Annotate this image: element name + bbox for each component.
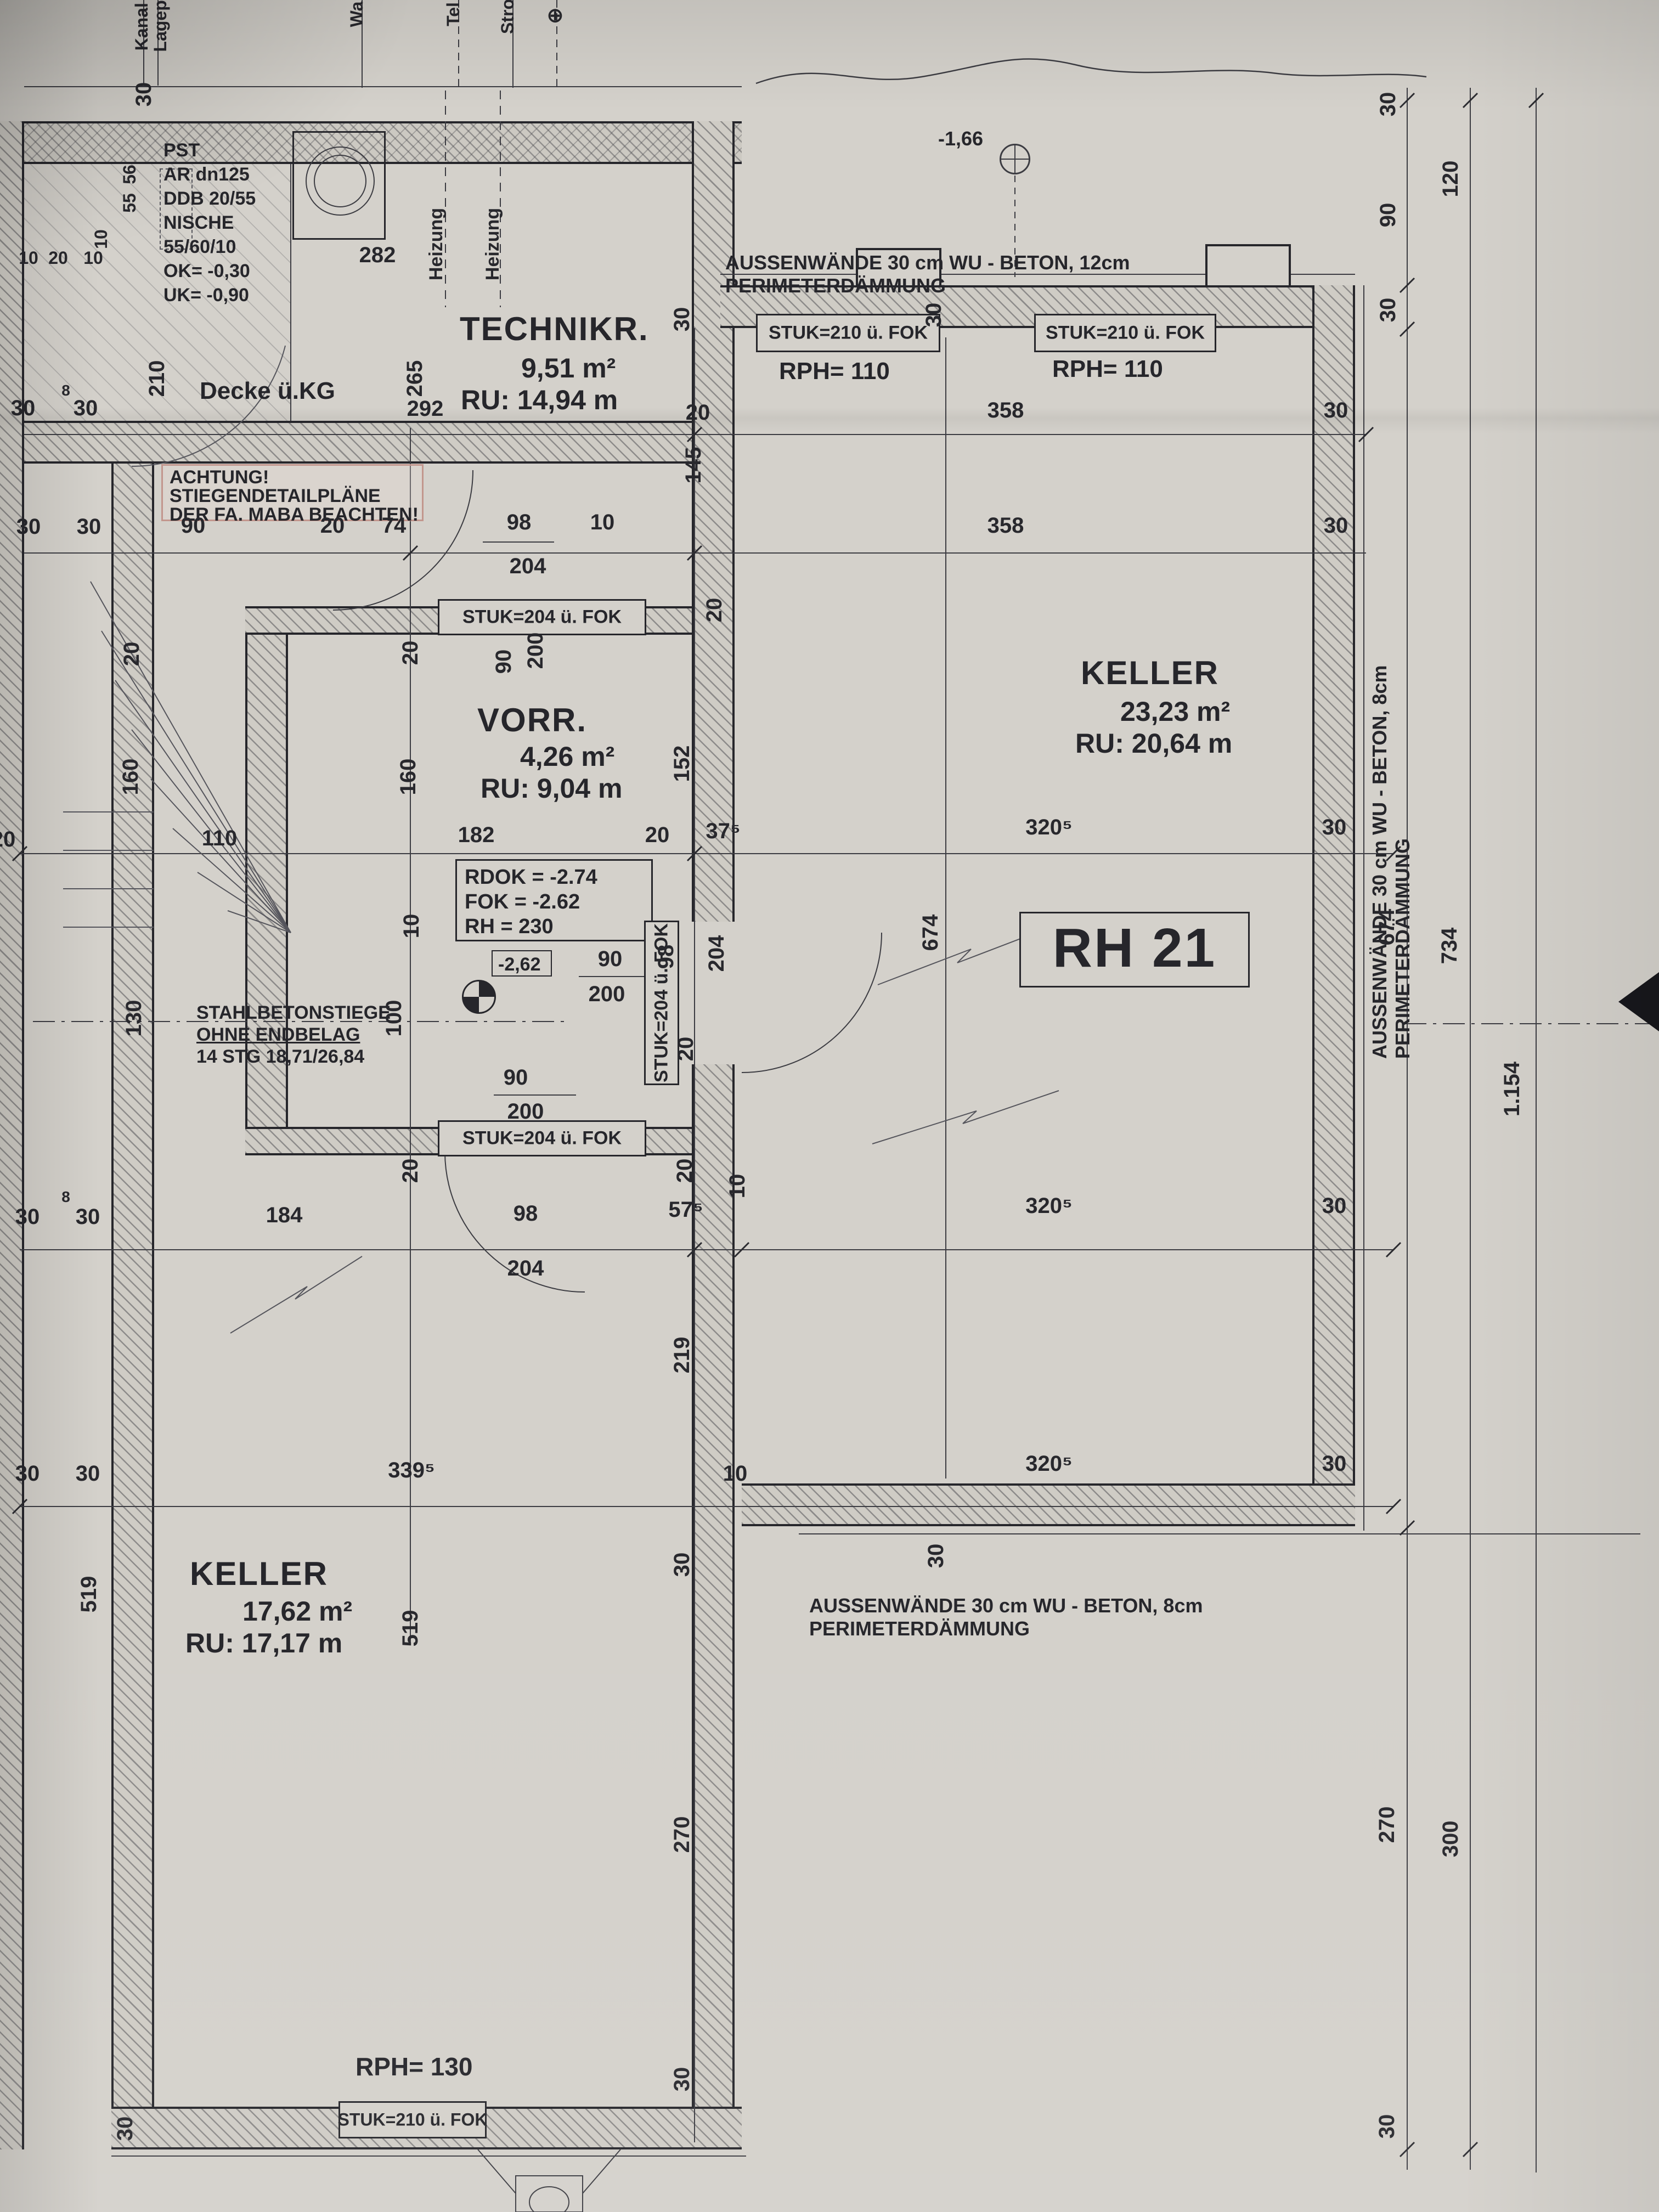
dim-label: 10 xyxy=(19,249,38,267)
dim-label: 30 xyxy=(1376,2114,1398,2139)
dim-label: 30 xyxy=(74,397,98,419)
dim-label: 90 xyxy=(181,515,206,537)
stairs-line: OHNE ENDBELAG xyxy=(196,1024,391,1046)
dim-label: 160 xyxy=(397,759,419,795)
dim-label: 282 xyxy=(359,244,396,266)
dim-label: 30 xyxy=(1324,399,1348,421)
dim-label: 184 xyxy=(266,1204,303,1226)
dim-label: 20 xyxy=(674,1159,696,1183)
dim-label: 292 xyxy=(407,398,444,420)
dim-label: 20 xyxy=(675,1037,697,1062)
dim-label: 20 xyxy=(48,249,68,267)
rph110-label-2: RPH= 110 xyxy=(1052,356,1163,383)
earth-symbol-icon: ⊕ xyxy=(547,5,563,25)
wall-note-top-1: AUSSENWÄNDE 30 cm WU - BETON, 12cm xyxy=(725,251,1130,274)
levels-line: FOK = -2.62 xyxy=(465,890,597,915)
dim-label: 130 xyxy=(123,1000,145,1037)
dim-label: 339⁵ xyxy=(388,1459,435,1481)
dim-label: 10 xyxy=(590,511,615,533)
dim-label: 20 xyxy=(320,515,345,537)
dim-label: 30 xyxy=(1322,816,1347,838)
stuk210-box-1: STUK=210 ü. FOK xyxy=(756,314,940,352)
heating-label-2: Heizung xyxy=(483,208,502,280)
level-marker-icon xyxy=(462,980,496,1014)
pst-line: OK= -0,30 xyxy=(163,259,256,283)
dim-label: 30 xyxy=(1322,1195,1347,1217)
dim-label: 1.154 xyxy=(1501,1062,1523,1116)
dim-label: 30 xyxy=(671,307,693,332)
dim-label: 30 xyxy=(923,303,945,328)
wall-note-bottom-1: AUSSENWÄNDE 30 cm WU - BETON, 8cm xyxy=(809,1594,1203,1617)
stuk210-label: STUK=210 ü. FOK xyxy=(769,323,928,344)
dim-label: 30 xyxy=(15,1463,40,1485)
dim-label: 320⁵ xyxy=(1025,1195,1073,1217)
north-arrow-icon xyxy=(1618,972,1659,1031)
heating-label-1: Heizung xyxy=(427,208,445,280)
stuk210-box-bottom: STUK=210 ü. FOK xyxy=(338,2101,487,2138)
dim-label: 204 xyxy=(706,935,727,972)
height-marker-icon xyxy=(1000,144,1030,174)
dim-label: 20 xyxy=(399,641,421,665)
rph130-label: RPH= 130 xyxy=(356,2052,473,2081)
dim-label: 160 xyxy=(120,759,142,795)
room-vorraum-ru: RU: 9,04 m xyxy=(481,772,622,804)
unit-label: RH 21 xyxy=(1053,917,1216,980)
edge-label-strom: Stro xyxy=(499,0,516,34)
ground-level-label: -1,66 xyxy=(938,127,983,150)
dim-label: 20 xyxy=(645,824,670,846)
dim-label: 37⁵ xyxy=(706,820,740,842)
dim-label: 10 xyxy=(726,1174,748,1199)
pst-line: UK= -0,90 xyxy=(163,283,256,307)
dim-label: 30 xyxy=(671,2067,693,2092)
dim-label: 57⁵ xyxy=(668,1199,703,1221)
room-kellerleft-name: KELLER xyxy=(190,1555,328,1593)
dim-label: 30 xyxy=(16,516,41,538)
dim-label: 30 xyxy=(76,1206,100,1228)
dim-label: 734 xyxy=(1438,928,1460,964)
dim-label: 200 xyxy=(524,633,546,669)
dim-label: 30 xyxy=(1377,298,1399,323)
dim-label: 30 xyxy=(77,516,101,538)
pst-line: AR dn125 xyxy=(163,162,256,187)
dim-label: 55 xyxy=(121,193,138,213)
stuk204-label: STUK=204 ü. FOK xyxy=(462,607,622,628)
level-tag-box: -2,62 xyxy=(492,950,552,977)
stairs-line: STAHLBETONSTIEGE xyxy=(196,1002,391,1024)
dim-label: 90 xyxy=(493,650,515,674)
dim-label: 200 xyxy=(589,983,625,1005)
dim-label: 10 xyxy=(400,914,422,939)
dim-label: 20 xyxy=(399,1159,421,1183)
dim-label: 56 xyxy=(121,165,138,184)
dim-label: 30 xyxy=(133,82,155,107)
edge-label-lageplan: Lagepla xyxy=(151,0,169,52)
dim-label: 20 xyxy=(121,642,143,667)
dim-label: 90 xyxy=(1377,203,1399,228)
dim-label: 98 xyxy=(507,511,532,533)
dim-label: 30 xyxy=(671,1553,693,1577)
dim-label: 182 xyxy=(458,824,495,846)
dim-label: 519 xyxy=(78,1576,100,1613)
dim-label: 519 xyxy=(399,1610,421,1647)
stairs-note: STAHLBETONSTIEGE OHNE ENDBELAG 14 STG 18… xyxy=(196,1002,391,1068)
unit-label-box: RH 21 xyxy=(1019,912,1250,988)
dim-label: 90 xyxy=(598,948,623,970)
stuk210-label: STUK=210 ü. FOK xyxy=(1046,323,1205,344)
edge-label-telefon: Tel xyxy=(444,2,462,26)
room-technik-area: 9,51 m² xyxy=(521,352,616,384)
dim-label: 300 xyxy=(1440,1821,1462,1858)
rph110-label-1: RPH= 110 xyxy=(779,358,890,385)
achtung-box: ACHTUNG! STIEGENDETAILPLÄNE DER FA. MABA… xyxy=(161,464,424,521)
stuk210-label: STUK=210 ü. FOK xyxy=(338,2110,488,2130)
levels-line: RH = 230 xyxy=(465,915,597,939)
dim-label: 90 xyxy=(504,1066,528,1088)
dim-label: 270 xyxy=(671,1816,693,1853)
pst-note: PST AR dn125 DDB 20/55 NISCHE 55/60/10 O… xyxy=(163,138,256,307)
stuk210-box-2: STUK=210 ü. FOK xyxy=(1034,314,1216,352)
dim-label: 10 xyxy=(723,1463,748,1485)
dim-label: 210 xyxy=(146,360,168,397)
dim-label: 674 xyxy=(1376,909,1398,946)
pst-line: DDB 20/55 xyxy=(163,187,256,211)
niche-equipment xyxy=(292,131,386,240)
room-technik-name: TECHNIKR. xyxy=(460,310,649,348)
room-kellerleft-area: 17,62 m² xyxy=(242,1595,352,1627)
floor-plan-sheet: -2,62 -1,66 TECHNIKR. 9,51 m² RU: 14,94 … xyxy=(0,0,1659,2212)
dim-label: 320⁵ xyxy=(1025,1453,1073,1475)
dim-label: 100 xyxy=(383,1000,405,1037)
room-vorraum-area: 4,26 m² xyxy=(520,741,614,772)
dim-label: 74 xyxy=(382,515,407,537)
dim-label: 219 xyxy=(671,1337,693,1374)
levels-text: RDOK = -2.74 FOK = -2.62 RH = 230 xyxy=(465,865,597,939)
stairs-line: 14 STG 18,71/26,84 xyxy=(196,1046,391,1068)
dim-label: 20 xyxy=(0,828,15,850)
levels-line: RDOK = -2.74 xyxy=(465,865,597,890)
dim-label: 10 xyxy=(92,229,110,249)
dim-label: 10 xyxy=(83,249,103,267)
stuk204-box-bottom: STUK=204 ü. FOK xyxy=(438,1120,646,1156)
stuk204-label: STUK=204 ü. FOK xyxy=(462,1128,622,1149)
dim-label: 204 xyxy=(510,555,546,577)
dim-label: 30 xyxy=(1324,515,1348,537)
dim-label: 120 xyxy=(1440,161,1462,198)
dim-label: 30 xyxy=(15,1206,40,1228)
wall-note-bottom-2: PERIMETERDÄMMUNG xyxy=(809,1617,1030,1640)
dim-label: 200 xyxy=(507,1101,544,1122)
dim-label: 320⁵ xyxy=(1025,816,1073,838)
dim-label: 152 xyxy=(671,746,693,782)
wall-note-top-2: PERIMETERDÄMMUNG xyxy=(725,274,946,297)
dim-label: 30 xyxy=(1377,92,1399,117)
dim-label: 204 xyxy=(507,1257,544,1279)
dim-label: 8 xyxy=(61,383,70,398)
achtung-line: ACHTUNG! xyxy=(170,468,419,487)
dim-label: 270 xyxy=(1376,1807,1398,1843)
dim-label: 30 xyxy=(114,2117,136,2141)
pst-line: PST xyxy=(163,138,256,162)
stuk204-box-top: STUK=204 ü. FOK xyxy=(438,599,646,635)
dim-label: 358 xyxy=(988,399,1024,421)
light-well-top-2 xyxy=(1205,244,1291,287)
dim-label: 20 xyxy=(686,402,710,424)
ceiling-note: Decke ü.KG xyxy=(200,377,335,405)
pst-line: 55/60/10 xyxy=(163,235,256,259)
dim-label: 674 xyxy=(919,915,941,951)
dim-label: 30 xyxy=(1322,1453,1347,1475)
edge-label-wasser: Wa xyxy=(348,2,365,27)
room-keller-name: KELLER xyxy=(1081,654,1219,692)
dim-label: 30 xyxy=(925,1544,947,1568)
room-vorraum-name: VORR. xyxy=(477,701,587,739)
room-kellerleft-ru: RU: 17,17 m xyxy=(185,1627,342,1659)
achtung-line: STIEGENDETAILPLÄNE xyxy=(170,487,419,505)
dim-label: 30 xyxy=(11,397,36,419)
edge-label-kanal: Kanal st xyxy=(133,0,150,50)
room-keller-area: 23,23 m² xyxy=(1120,696,1230,727)
dim-label: 30 xyxy=(76,1463,100,1485)
room-keller-ru: RU: 20,64 m xyxy=(1075,727,1232,759)
dim-label: 8 xyxy=(61,1189,70,1205)
dim-label: 20 xyxy=(703,598,725,623)
dim-label: 265 xyxy=(404,360,426,397)
dim-label: 110 xyxy=(202,827,238,849)
room-technik-ru: RU: 14,94 m xyxy=(461,384,618,416)
dim-label: 98 xyxy=(655,945,677,969)
dim-label: 358 xyxy=(988,515,1024,537)
level-tag: -2,62 xyxy=(498,954,541,975)
levels-box: RDOK = -2.74 FOK = -2.62 RH = 230 xyxy=(455,859,653,941)
pst-line: NISCHE xyxy=(163,211,256,235)
dim-label: 98 xyxy=(513,1203,538,1224)
dim-label: 145 xyxy=(682,447,704,484)
